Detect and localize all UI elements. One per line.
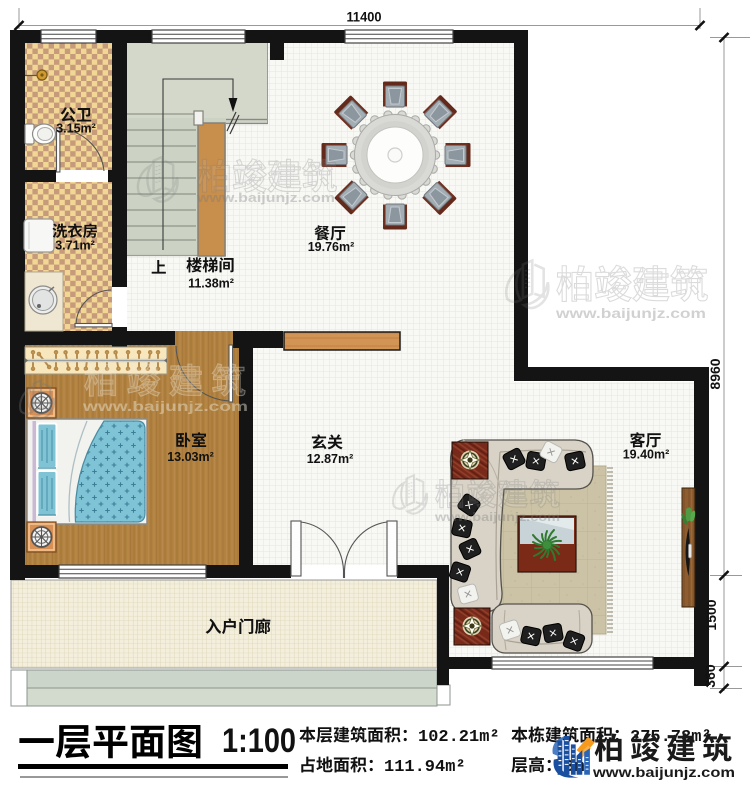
svg-text:3.71m²: 3.71m² (55, 239, 95, 253)
svg-text:111.94m²: 111.94m² (384, 758, 466, 777)
svg-text:12.87m²: 12.87m² (307, 452, 354, 466)
svg-text:13.03m²: 13.03m² (167, 450, 214, 464)
svg-text:www.baijunjz.com: www.baijunjz.com (434, 510, 560, 524)
svg-text:1:100: 1:100 (222, 722, 296, 760)
svg-text:www.baijunjz.com: www.baijunjz.com (555, 305, 706, 321)
svg-text:360: 360 (702, 664, 718, 688)
svg-text:8960: 8960 (707, 358, 723, 389)
svg-text:19.76m²: 19.76m² (308, 240, 355, 254)
svg-text:www.baijunjz.com: www.baijunjz.com (82, 398, 248, 414)
svg-text:102.21m²: 102.21m² (418, 728, 500, 747)
svg-text:3.15m²: 3.15m² (56, 122, 96, 136)
svg-text:11.38m²: 11.38m² (188, 277, 234, 291)
svg-text:19.40m²: 19.40m² (623, 448, 670, 462)
svg-text:1500: 1500 (703, 599, 719, 630)
svg-text:11400: 11400 (347, 9, 382, 25)
svg-text:www.baijunjz.com: www.baijunjz.com (196, 190, 335, 205)
svg-text:www.baijunjz.com: www.baijunjz.com (592, 764, 735, 780)
